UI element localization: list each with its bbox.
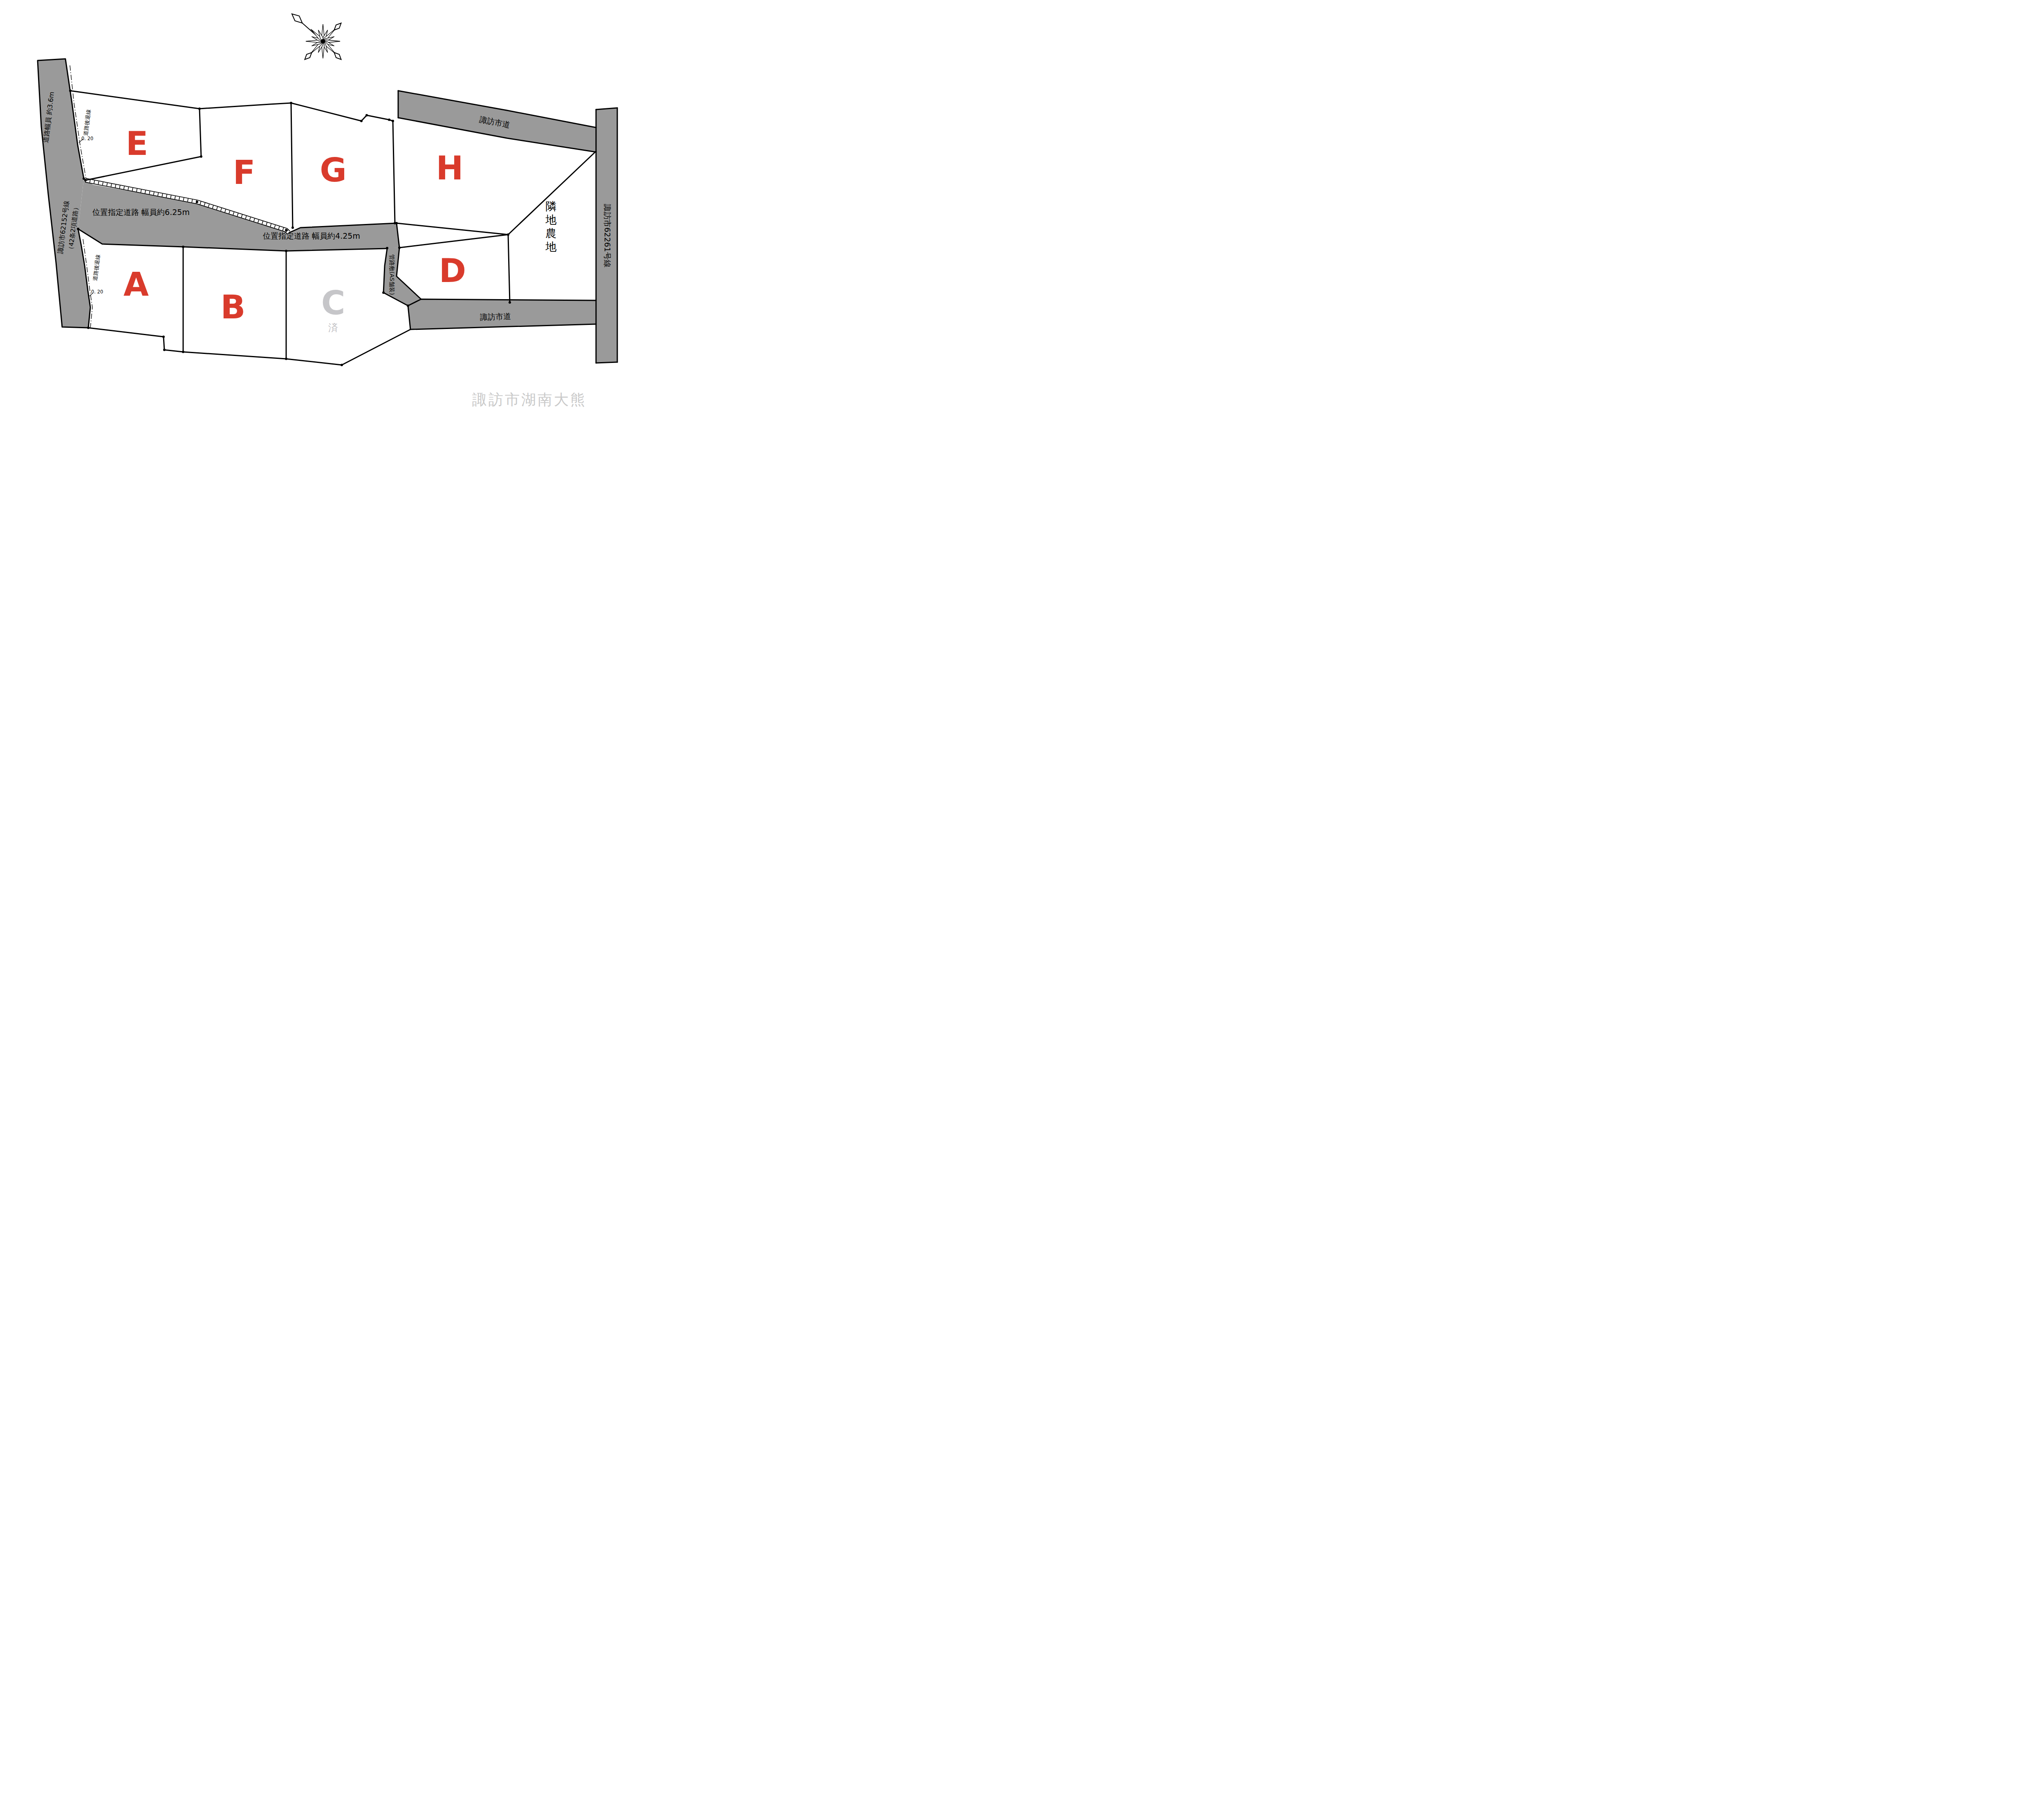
lot-D-top-boundary: [399, 235, 508, 248]
lot-label-B: B: [221, 288, 246, 326]
road-label-right-62261: 諏訪市62261号線: [603, 204, 612, 267]
lot-C-southeast-boundary: [342, 329, 410, 365]
lot-label-E: E: [126, 125, 148, 163]
lot-F-top-boundary: [199, 103, 291, 109]
road-label-duct: 管路敷(AS舗装): [389, 254, 395, 295]
lot-G-top-boundary: [291, 103, 393, 121]
setback-label-lower: 道路後退線: [92, 254, 101, 281]
lot-F-G-boundary: [291, 103, 293, 228]
compass-starburst: [306, 24, 340, 58]
lot-label-G: G: [320, 151, 347, 189]
setback-offset-lower: 0. 20: [91, 289, 103, 295]
lot-label-C-sold: C: [321, 284, 345, 322]
lot-C-sold-mark: 済: [328, 322, 338, 334]
road-label-shitei-425: 位置指定道路 幅員約4.25m: [263, 231, 360, 240]
farmland-char-1: 隣: [546, 200, 557, 213]
road-label-shitei-625: 位置指定道路 幅員約6.25m: [92, 208, 190, 217]
lot-G-H-boundary: [393, 121, 395, 223]
farmland-char-3: 農: [546, 227, 557, 240]
subdivision-map: 位置指定道路 幅員約6.25m 位置指定道路 幅員約4.25m 諏訪市道 諏訪市…: [0, 0, 652, 448]
setback-offset-upper: 0. 20: [81, 136, 93, 141]
setback-label-upper: 道路後退線: [83, 109, 92, 136]
lot-label-H: H: [436, 149, 464, 187]
lot-H-bottom-boundary: [397, 223, 508, 235]
farmland-label: 隣 地 農 地: [545, 200, 557, 253]
farmland-char-4: 地: [545, 240, 557, 253]
road-label-bottom-shido: 諏訪市道: [480, 311, 511, 322]
lot-D-right-boundary: [508, 235, 510, 302]
lot-C-bottom-boundary: [286, 359, 342, 365]
lot-label-F: F: [233, 154, 255, 192]
lot-A-bottom-boundary: [88, 328, 183, 352]
lot-B-bottom-boundary: [183, 352, 286, 359]
farmland-char-2: 地: [545, 213, 557, 226]
compass-north-arrow-icon: [292, 14, 341, 60]
lot-label-D: D: [439, 252, 466, 290]
location-label: 諏訪市湖南大熊: [472, 391, 587, 408]
right-road-bottom-border: [596, 362, 617, 363]
lot-label-A: A: [123, 266, 149, 304]
lot-map-canvas: 位置指定道路 幅員約6.25m 位置指定道路 幅員約4.25m 諏訪市道 諏訪市…: [0, 0, 652, 448]
